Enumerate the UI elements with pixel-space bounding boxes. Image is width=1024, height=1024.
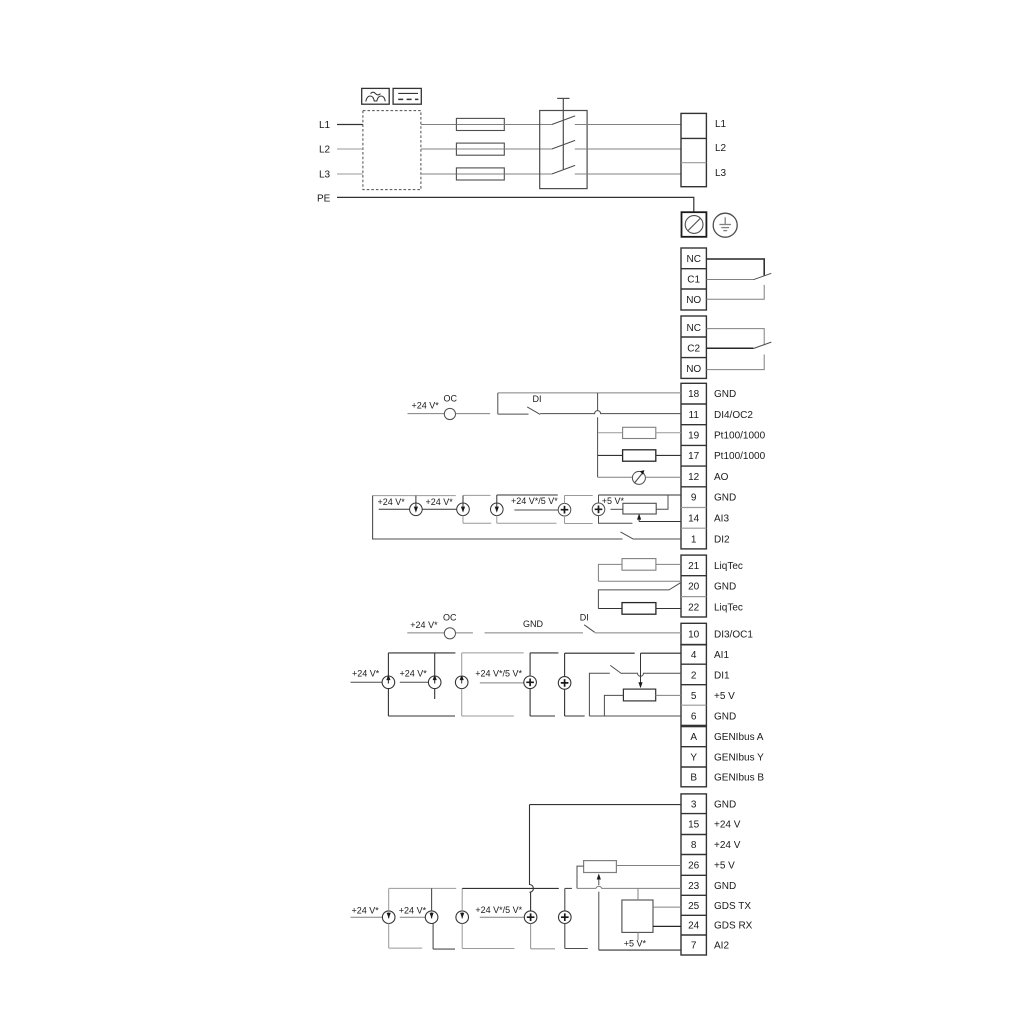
svg-text:L1: L1: [715, 119, 727, 130]
svg-text:26: 26: [688, 861, 700, 872]
svg-text:GDS TX: GDS TX: [714, 901, 751, 912]
svg-text:Pt100/1000: Pt100/1000: [714, 451, 766, 462]
svg-text:+24 V*: +24 V*: [400, 668, 428, 678]
svg-text:+5 V: +5 V: [714, 861, 735, 872]
svg-text:24: 24: [688, 921, 700, 932]
svg-text:AO: AO: [714, 472, 729, 483]
svg-text:C1: C1: [687, 275, 700, 286]
svg-text:+24 V*: +24 V*: [426, 497, 454, 507]
svg-text:DI2: DI2: [714, 535, 730, 546]
svg-text:L3: L3: [715, 168, 727, 179]
svg-text:22: 22: [688, 602, 700, 613]
svg-text:L2: L2: [319, 145, 331, 156]
svg-text:GND: GND: [714, 582, 736, 593]
svg-text:8: 8: [691, 840, 697, 851]
svg-text:GND: GND: [714, 711, 736, 722]
svg-text:DI3/OC1: DI3/OC1: [714, 629, 753, 640]
svg-text:DI1: DI1: [714, 670, 730, 681]
svg-text:DI: DI: [533, 394, 542, 404]
svg-text:+24 V*/5 V*: +24 V*/5 V*: [475, 905, 522, 915]
svg-text:1: 1: [691, 535, 697, 546]
svg-text:NC: NC: [686, 323, 700, 334]
svg-text:+5 V: +5 V: [714, 691, 735, 702]
svg-text:2: 2: [691, 670, 697, 681]
svg-text:AI1: AI1: [714, 650, 729, 661]
svg-text:+24 V: +24 V: [714, 840, 741, 851]
svg-text:9: 9: [691, 493, 697, 504]
svg-text:DI: DI: [580, 613, 589, 623]
svg-text:+24 V*: +24 V*: [399, 906, 427, 916]
svg-text:21: 21: [688, 561, 700, 572]
svg-text:Y: Y: [690, 752, 697, 763]
svg-text:19: 19: [688, 431, 700, 442]
svg-text:18: 18: [688, 389, 700, 400]
svg-text:20: 20: [688, 582, 700, 593]
svg-text:GND: GND: [714, 493, 736, 504]
svg-text:PE: PE: [317, 194, 331, 205]
svg-text:14: 14: [688, 513, 700, 524]
svg-text:5: 5: [691, 691, 697, 702]
svg-text:12: 12: [688, 472, 700, 483]
svg-text:10: 10: [688, 629, 700, 640]
svg-text:L3: L3: [319, 170, 331, 181]
svg-text:+24 V*: +24 V*: [378, 497, 406, 507]
svg-text:+24 V: +24 V: [714, 820, 741, 831]
svg-text:GND: GND: [714, 881, 736, 892]
svg-text:25: 25: [688, 901, 700, 912]
svg-text:NO: NO: [686, 364, 701, 375]
svg-text:B: B: [690, 772, 697, 783]
svg-text:L1: L1: [319, 120, 331, 131]
svg-text:AI3: AI3: [714, 513, 729, 524]
svg-text:GENIbus B: GENIbus B: [714, 772, 764, 783]
svg-text:11: 11: [689, 410, 700, 421]
svg-text:GENIbus Y: GENIbus Y: [714, 752, 764, 763]
svg-text:C2: C2: [687, 344, 700, 355]
svg-text:GENIbus A: GENIbus A: [714, 732, 764, 743]
svg-text:LiqTec: LiqTec: [714, 561, 743, 572]
svg-text:NO: NO: [686, 295, 701, 306]
svg-text:7: 7: [691, 941, 697, 952]
svg-text:L2: L2: [715, 143, 727, 154]
svg-text:OC: OC: [444, 393, 458, 403]
svg-text:15: 15: [688, 820, 700, 831]
svg-text:OC: OC: [443, 613, 457, 623]
svg-text:NC: NC: [686, 254, 700, 265]
svg-text:4: 4: [691, 650, 697, 661]
svg-text:23: 23: [688, 881, 700, 892]
svg-text:+5 V*: +5 V*: [624, 939, 647, 949]
svg-text:A: A: [690, 732, 697, 743]
svg-text:+5 V*: +5 V*: [602, 496, 625, 506]
svg-text:+24 V*: +24 V*: [412, 401, 440, 411]
svg-text:17: 17: [688, 451, 700, 462]
svg-text:3: 3: [691, 799, 697, 810]
svg-text:GND: GND: [523, 619, 544, 629]
svg-text:AI2: AI2: [714, 941, 729, 952]
svg-text:+24 V*: +24 V*: [352, 668, 380, 678]
svg-text:LiqTec: LiqTec: [714, 602, 743, 613]
svg-text:Pt100/1000: Pt100/1000: [714, 431, 766, 442]
svg-text:GDS RX: GDS RX: [714, 921, 753, 932]
svg-text:+24 V*/5 V*: +24 V*/5 V*: [475, 668, 522, 678]
svg-text:+24 V*: +24 V*: [410, 620, 438, 630]
svg-text:DI4/OC2: DI4/OC2: [714, 410, 753, 421]
svg-text:GND: GND: [714, 389, 736, 400]
svg-text:GND: GND: [714, 799, 736, 810]
svg-text:+24 V*: +24 V*: [352, 906, 380, 916]
svg-text:6: 6: [691, 711, 697, 722]
svg-text:+24 V*/5 V*: +24 V*/5 V*: [511, 496, 558, 506]
